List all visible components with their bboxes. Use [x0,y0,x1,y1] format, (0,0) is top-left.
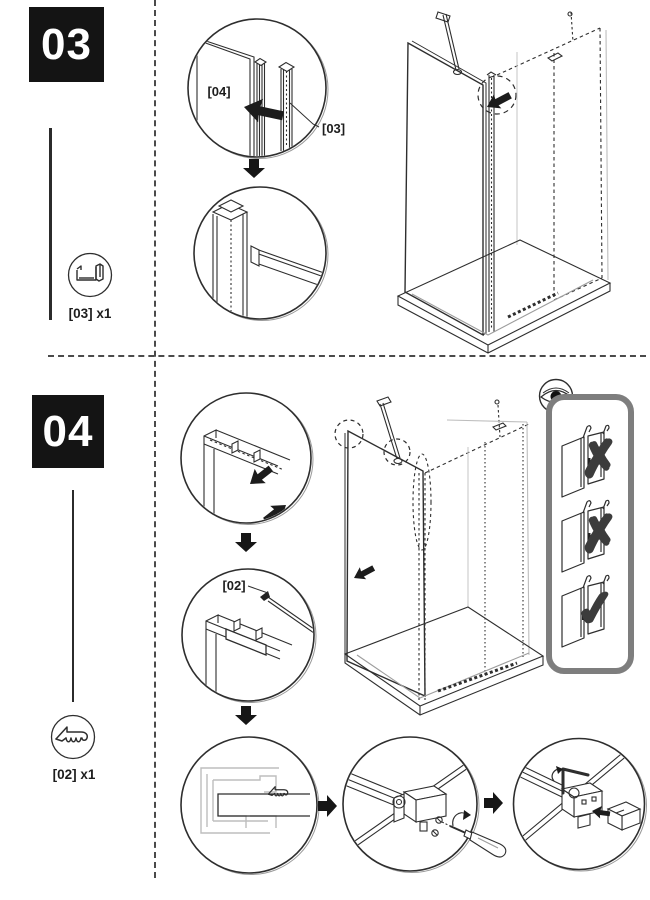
corner-arrow [483,88,513,114]
hinge-bracket [548,53,562,61]
step-04-rule [72,490,74,702]
detail-circle-allen-key-cap [512,737,650,873]
step-03-number: 03 [41,20,92,70]
part-03-quantity-label: [03] x1 [55,306,125,321]
down-arrow-icon [243,159,265,178]
wrong-mark-1: ✗ [578,434,621,484]
vertical-dashed-divider [154,0,156,878]
down-arrow-icon [235,533,257,552]
shower-tray [345,607,543,715]
panel-arrow [351,562,377,584]
rubber-seal-profile-icon [49,713,99,763]
orientation-checks-panel: ✗ ✗ ✓ [546,394,634,674]
wall-profile [487,72,496,332]
step-04-badge: 04 [32,395,104,468]
door-panel-dashed [497,28,602,300]
profile-03-label: [03] [322,121,345,136]
shower-tray [398,240,610,353]
highlight-dashed-circle [335,420,363,448]
correct-mark: ✓ [574,584,619,636]
step-03-rule [49,128,52,320]
highlight-dashed-circle [478,76,516,114]
top-edge-dashed [425,424,529,473]
glass-04-label: [04] [207,84,230,99]
step-04-number: 04 [43,407,94,457]
wrong-mark-2: ✗ [578,509,621,559]
ceiling-anchor [493,400,506,437]
detail-circle-profile-joined [193,186,337,330]
detail-circle-channel-slide [180,392,312,526]
detail-circle-insert-profile: [04] [03] [186,17,356,163]
wall-profile-dashed [413,454,431,700]
enclosure-isometric-step03 [388,12,642,352]
part-02-quantity-label: [02] x1 [39,767,109,782]
u-channel-profile-icon [66,251,114,299]
right-arrow-icon [318,795,337,817]
ceiling-anchor [568,12,573,42]
horizontal-dashed-divider [48,355,646,357]
door-panel-dotted [485,424,523,675]
seal-02-label: [02] [222,578,245,593]
down-arrow-icon [235,706,257,725]
instruction-page: 03 [03] x1 [0,0,650,900]
detail-circle-seal-insert: [02] [180,567,320,710]
detail-circle-seal-cross-section [180,736,324,878]
side-panel-edge [606,30,608,280]
fixed-glass-panel [345,431,425,696]
step-03-badge: 03 [29,7,104,82]
right-arrow-icon [484,792,503,814]
enclosure-isometric-step04 [333,397,549,725]
fixed-glass-panel [405,41,486,335]
